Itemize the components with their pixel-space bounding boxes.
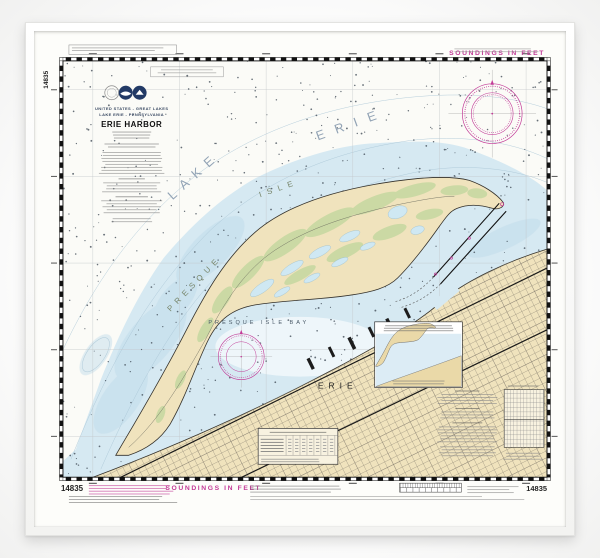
nation-line: UNITED STATES - GREAT LAKES (95, 106, 168, 111)
inset-map (375, 322, 463, 388)
chart-number-bottom-left: 14835 (61, 484, 84, 493)
soundings-note-bottom: SOUNDINGS IN FEET (165, 485, 261, 492)
scale-ruler (400, 483, 462, 492)
presque-isle-bay-label: PRESQUE ISLE BAY (208, 320, 309, 326)
region-line: LAKE ERIE - PENNSYLVANIA (99, 112, 164, 117)
water-level-diagram (504, 390, 544, 448)
chart-title: ERIE HARBOR (101, 120, 162, 129)
chart-number-bottom-right: 14835 (526, 484, 547, 493)
nautical-chart: LAKE ERIE PRESQUE ISLE PRESQUE ISLE BAY … (34, 31, 566, 527)
top-left-note-box (69, 45, 177, 54)
erie-city-label: ERIE (318, 381, 358, 391)
picture-frame: LAKE ERIE PRESQUE ISLE PRESQUE ISLE BAY … (25, 22, 575, 536)
framed-chart-photo: LAKE ERIE PRESQUE ISLE PRESQUE ISLE BAY … (0, 0, 600, 558)
chart-interior: LAKE ERIE PRESQUE ISLE PRESQUE ISLE BAY … (34, 60, 566, 527)
chart-paper: LAKE ERIE PRESQUE ISLE PRESQUE ISLE BAY … (34, 31, 566, 527)
chart-number-left-vertical: 14835 (43, 70, 50, 88)
soundings-note-top: SOUNDINGS IN FEET (449, 50, 545, 57)
